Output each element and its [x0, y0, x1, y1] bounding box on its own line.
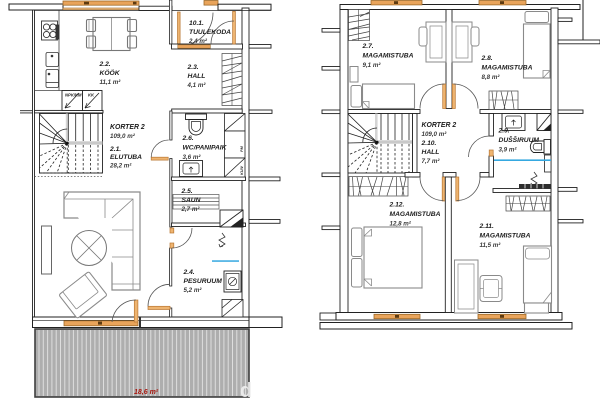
svg-text:KK: KK	[88, 93, 95, 98]
svg-text:KORTER 2: KORTER 2	[422, 122, 457, 129]
svg-text:2.8.: 2.8.	[481, 55, 493, 62]
svg-text:HALL: HALL	[188, 73, 206, 80]
svg-text:109,0 m²: 109,0 m²	[422, 131, 448, 138]
svg-text:2.5.: 2.5.	[181, 188, 193, 195]
svg-text:11,5 m²: 11,5 m²	[480, 242, 502, 249]
svg-text:WC/PANIPAIK: WC/PANIPAIK	[183, 145, 228, 152]
svg-text:PM: PM	[240, 145, 244, 152]
svg-text:2.10.: 2.10.	[421, 140, 437, 147]
svg-text:MAGAMISTUBA: MAGAMISTUBA	[363, 53, 414, 60]
svg-text:SAUN: SAUN	[182, 197, 201, 204]
svg-text:9,1 m²: 9,1 m²	[363, 62, 382, 69]
svg-text:TUULEKODA: TUULEKODA	[189, 29, 231, 36]
svg-text:18,6 m²: 18,6 m²	[134, 389, 159, 396]
svg-text:4,1 m²: 4,1 m²	[187, 82, 207, 89]
svg-text:d: d	[240, 380, 252, 400]
svg-text:8,8 m²: 8,8 m²	[482, 74, 501, 81]
svg-text:12,8 m²: 12,8 m²	[390, 221, 412, 228]
svg-text:7,7 m²: 7,7 m²	[422, 158, 441, 165]
svg-text:2.2.: 2.2.	[99, 61, 111, 68]
svg-text:2.4.: 2.4.	[183, 269, 195, 276]
svg-text:3,6 m²: 3,6 m²	[183, 154, 202, 161]
svg-text:PESURUUM: PESURUUM	[184, 278, 223, 285]
svg-text:KUIV: KUIV	[240, 165, 244, 175]
svg-text:DUŠŠIRUUM: DUŠŠIRUUM	[499, 135, 540, 144]
svg-text:MAGAMISTUBA: MAGAMISTUBA	[390, 211, 441, 218]
svg-text:2,4 m²: 2,4 m²	[188, 38, 208, 45]
svg-text:KÖÖK: KÖÖK	[100, 68, 121, 77]
svg-text:2.6.: 2.6.	[182, 135, 194, 142]
svg-text:2.9.: 2.9.	[498, 128, 510, 135]
svg-text:ELUTUBA: ELUTUBA	[110, 154, 142, 161]
svg-text:2.11.: 2.11.	[479, 223, 495, 230]
svg-text:10.1.: 10.1.	[189, 20, 204, 27]
svg-text:NPK/KM: NPK/KM	[65, 93, 82, 98]
svg-text:2.3.: 2.3.	[187, 64, 199, 71]
svg-text:2.7.: 2.7.	[362, 43, 374, 50]
svg-text:MAGAMISTUBA: MAGAMISTUBA	[480, 233, 531, 240]
svg-text:KORTER 2: KORTER 2	[110, 124, 145, 131]
svg-text:11,1 m²: 11,1 m²	[100, 79, 122, 86]
svg-text:2.12.: 2.12.	[389, 202, 405, 209]
svg-text:2.1.: 2.1.	[109, 146, 121, 153]
svg-text:HALL: HALL	[422, 149, 440, 156]
svg-text:5,2 m²: 5,2 m²	[184, 287, 203, 294]
svg-text:28,2 m²: 28,2 m²	[109, 163, 132, 170]
svg-text:MAGAMISTUBA: MAGAMISTUBA	[482, 65, 533, 72]
svg-text:2,7 m²: 2,7 m²	[181, 206, 201, 213]
svg-text:3,9 m²: 3,9 m²	[499, 147, 518, 154]
svg-text:109,0 m²: 109,0 m²	[110, 133, 136, 140]
